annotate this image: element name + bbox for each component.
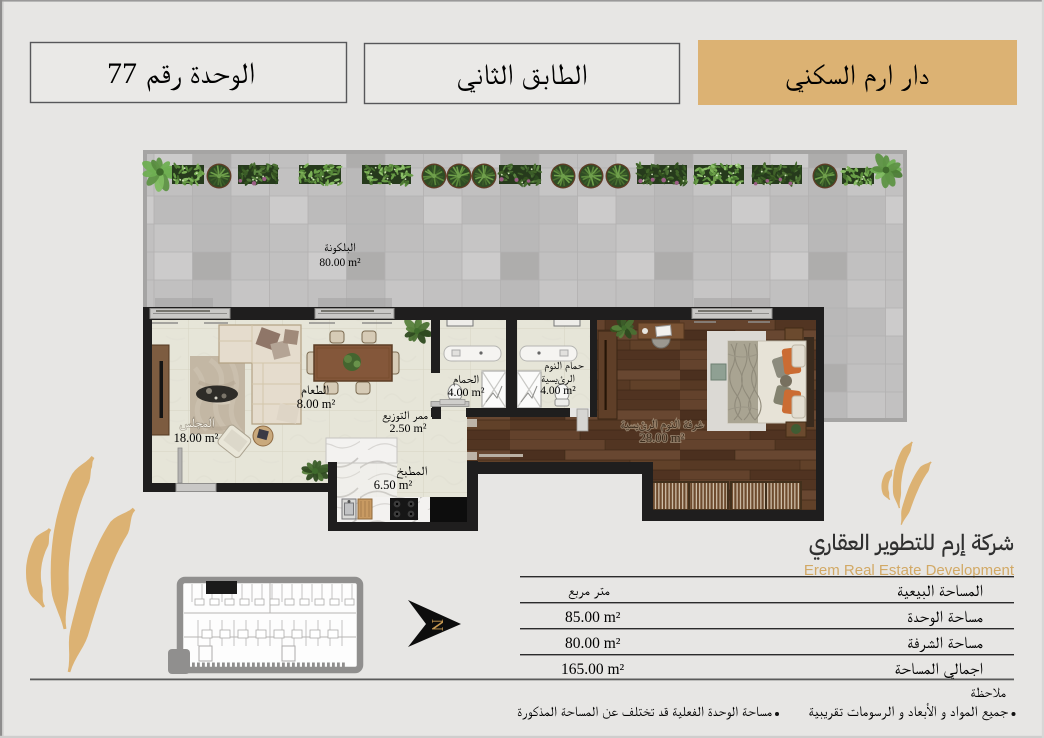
svg-text:80.00 m²: 80.00 m² [565, 635, 621, 652]
svg-text:4.00 m²: 4.00 m² [448, 385, 485, 399]
svg-text:8.00 m²: 8.00 m² [297, 397, 336, 411]
svg-text:N: N [428, 619, 447, 631]
svg-text:18.00 m²: 18.00 m² [174, 431, 219, 445]
svg-text:85.00 m²: 85.00 m² [565, 609, 621, 626]
svg-text:77: 77 [107, 57, 137, 90]
svg-text:80.00 m²: 80.00 m² [319, 257, 361, 269]
svg-text:6.50 m²: 6.50 m² [374, 478, 413, 492]
svg-text:28.00 m²: 28.00 m² [640, 431, 685, 445]
svg-text:2.50 m²: 2.50 m² [390, 421, 427, 435]
svg-text:4.00 m²: 4.00 m² [540, 385, 576, 397]
svg-text:165.00 m²: 165.00 m² [561, 661, 625, 678]
